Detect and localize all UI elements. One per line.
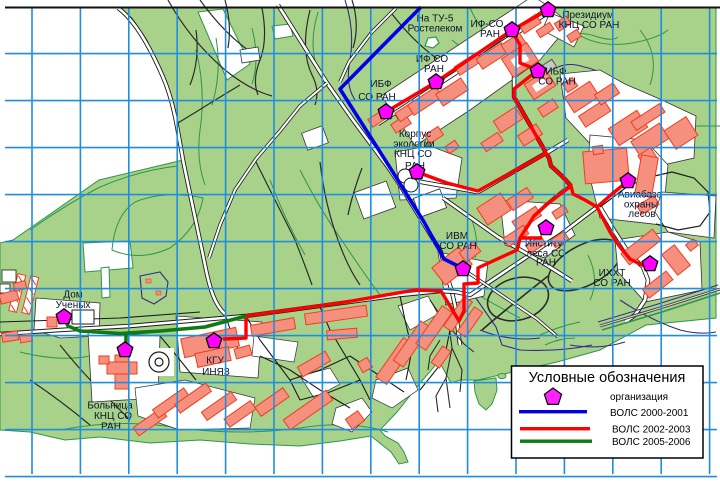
- svg-text:ВОЛС 2000-2001: ВОЛС 2000-2001: [610, 408, 689, 419]
- svg-text:ВОЛС 2005-2006: ВОЛС 2005-2006: [612, 437, 691, 448]
- svg-text:ВОЛС 2002-2003: ВОЛС 2002-2003: [612, 425, 691, 436]
- svg-text:СО РАН: СО РАН: [538, 77, 575, 88]
- svg-text:Условные обозначения: Условные обозначения: [529, 370, 686, 386]
- svg-text:ИБФ: ИБФ: [370, 79, 392, 90]
- svg-text:Ученых: Ученых: [56, 300, 91, 311]
- svg-text:Больница: Больница: [87, 401, 133, 412]
- svg-text:Ростелеком: Ростелеком: [408, 24, 463, 35]
- svg-text:лесов: лесов: [628, 209, 655, 220]
- svg-text:организация: организация: [610, 392, 668, 403]
- svg-text:СО РАН: СО РАН: [439, 241, 476, 252]
- svg-text:КНЦ СО: КНЦ СО: [94, 411, 132, 422]
- svg-text:КНЦ СО РАН: КНЦ СО РАН: [559, 20, 620, 31]
- svg-text:КНЦ СО: КНЦ СО: [394, 149, 432, 160]
- svg-text:РАН: РАН: [424, 64, 444, 75]
- svg-text:КГУ: КГУ: [206, 356, 224, 367]
- svg-text:РАН: РАН: [101, 422, 121, 433]
- svg-text:РАН: РАН: [536, 258, 556, 269]
